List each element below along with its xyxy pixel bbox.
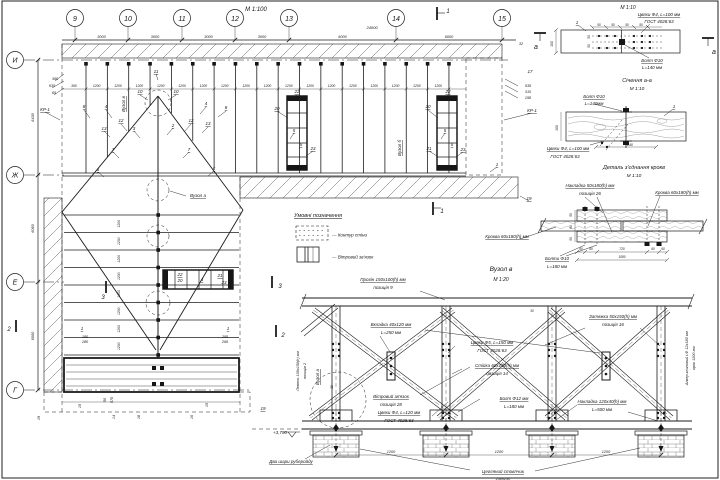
callout-text: 23	[220, 280, 227, 285]
callout-text: 50	[611, 23, 615, 27]
callout-text: 1200	[117, 272, 121, 280]
callout-text: Болт Ф10	[583, 94, 605, 99]
detail-joint-scale: М 1:10	[620, 5, 636, 11]
callout-text: 1	[446, 9, 449, 15]
plan-hip-lines	[62, 96, 243, 358]
callout-text: позиція 26	[579, 191, 601, 196]
callout-text: 3	[278, 284, 282, 290]
callout-text: 2	[280, 333, 285, 339]
callout-text: 570	[110, 396, 114, 403]
callout-text: 1200	[285, 84, 293, 88]
section-aa-scale: М 1:10	[630, 86, 645, 92]
callout-text: 8	[83, 104, 86, 109]
callout-text: 1200	[117, 255, 121, 263]
plan-scale-label: М 1:100	[245, 7, 267, 13]
callout-text: 11	[154, 69, 159, 74]
callout-text: 310	[525, 90, 532, 94]
callout-text: Вкладка 40х120 мм	[371, 322, 412, 327]
callout-text: 60	[569, 225, 573, 229]
callout-text: Лежень 100х150(h) мм	[296, 351, 300, 392]
callout-text: позиція 16	[602, 322, 624, 327]
callout-text: 14	[392, 16, 400, 23]
legend-symbols	[296, 226, 328, 262]
callout-text: 60	[579, 247, 583, 251]
legend-title: Умовні позначення	[293, 213, 342, 219]
callout-text: 1	[576, 20, 579, 25]
callout-text: позиція 28	[380, 402, 402, 407]
callout-text: 240	[626, 143, 633, 147]
callout-text: Цвяхи Ф4, L=100 мм	[638, 12, 681, 17]
callout-text: Болти Ф10	[545, 256, 569, 261]
callout-text: 1200	[349, 84, 357, 88]
callout-text: И	[12, 58, 18, 65]
callout-text: 6000	[338, 35, 347, 39]
callout-text: 180	[82, 340, 89, 344]
callout-text: 4	[205, 101, 208, 106]
callout-text: 22	[293, 89, 300, 94]
callout-text: 1200	[117, 220, 121, 228]
callout-text: Анкер клиновий LФ 12х180 мм	[685, 331, 689, 386]
rafter-detail-scale: М 1:10	[627, 173, 642, 179]
callout-text: Ж	[11, 173, 19, 180]
callout-text: 21	[425, 146, 432, 151]
rafter-detail-title: Деталь з'єднання крокв	[602, 165, 665, 171]
callout-text: 265	[221, 340, 229, 344]
callout-text: 1200	[117, 237, 121, 245]
callout-text: 60	[589, 247, 593, 251]
callout-text: Затяжка 50х150(h) мм	[589, 314, 637, 319]
callout-text: 16	[190, 414, 194, 419]
callout-text: 1200	[328, 84, 336, 88]
callout-text: 13	[101, 126, 107, 131]
callout-text: 19	[526, 196, 532, 201]
callout-text: 20	[273, 106, 280, 111]
callout-text: 30	[530, 309, 534, 313]
callout-text: 65	[52, 91, 57, 95]
detail-rafter-connection	[520, 196, 707, 262]
callout-text: 5	[444, 128, 447, 133]
callout-text: Вузол а	[190, 193, 206, 198]
callout-text: 1200	[136, 84, 144, 88]
callout-text: 6430	[31, 112, 35, 121]
callout-text: Два шари руберойду	[268, 458, 313, 464]
callout-text: 360	[52, 77, 59, 81]
callout-text: 11	[178, 16, 185, 23]
callout-text: 1200	[413, 84, 421, 88]
callout-text: 24000	[365, 25, 378, 30]
callout-text: Вузол а	[315, 369, 320, 385]
callout-text: 1200	[435, 84, 443, 88]
callout-text: 19	[37, 415, 41, 420]
callout-text: 1080	[618, 255, 625, 259]
callout-text: КР-1	[40, 107, 50, 112]
callout-text: 1200	[114, 84, 122, 88]
callout-text: 60	[651, 247, 655, 251]
callout-text: 50	[597, 23, 601, 27]
callout-text: позиція 14	[486, 371, 508, 376]
callout-text: 21	[216, 273, 223, 278]
callout-text: 50	[639, 23, 643, 27]
callout-text: 60	[661, 247, 665, 251]
callout-text: Накладка 50х180(h) мм	[566, 183, 615, 188]
callout-text: 1	[440, 209, 443, 215]
callout-text: 2	[171, 123, 175, 128]
detail-section-aa	[561, 104, 686, 150]
callout-text: 1200	[264, 84, 272, 88]
callout-text: 23	[459, 147, 466, 152]
callout-text: КР-1	[527, 108, 537, 113]
callout-text: 50	[103, 397, 107, 402]
callout-text: 6000	[31, 331, 35, 340]
callout-text: 1200	[117, 325, 121, 333]
callout-text: 8	[225, 105, 228, 110]
callout-text: 1200	[602, 450, 611, 454]
callout-text: 360	[71, 84, 77, 88]
callout-text: 6000	[445, 35, 454, 39]
callout-text: 1200	[387, 450, 396, 454]
callout-text: Накладка 120х40(h) мм	[578, 399, 627, 404]
callout-text: 3000	[97, 35, 106, 39]
callout-text: L=500 мм	[592, 407, 612, 412]
callout-text: 14	[112, 415, 116, 419]
callout-text: а	[534, 44, 538, 51]
callout-text: 1200	[392, 84, 400, 88]
callout-text: 1	[227, 326, 230, 331]
detail-joint-plan	[534, 24, 714, 58]
callout-text: 6060	[31, 223, 35, 232]
callout-text: ГОСТ 4028:63	[644, 19, 674, 24]
callout-text: 22	[176, 272, 183, 277]
callout-text: позиція 2	[303, 362, 307, 379]
callout-text: 20	[424, 104, 431, 109]
callout-text: Стійка 60х150(h) мм	[475, 362, 519, 368]
callout-text: Цвяхи Ф4, L=120 мм	[378, 410, 421, 415]
callout-text: L=140 мм	[642, 65, 662, 70]
callout-text: 10	[173, 89, 179, 94]
callout-text: 13	[285, 16, 293, 23]
callout-text: 19	[260, 406, 266, 411]
callout-text: 12	[118, 118, 124, 123]
callout-text: L=250 мм	[381, 330, 401, 335]
callout-text: 3000	[258, 35, 267, 39]
callout-text: 1200	[370, 84, 378, 88]
callout-text: 3	[133, 126, 136, 131]
callout-text: 6	[213, 166, 216, 171]
callout-text: 720	[619, 247, 625, 251]
callout-text: Цвяхи Ф4, L=100 мм	[547, 146, 590, 151]
callout-text: 1200	[495, 450, 504, 454]
plan-bottom-beam-box	[62, 358, 240, 402]
callout-text: 1	[496, 162, 499, 167]
callout-text: 1200	[93, 84, 101, 88]
callout-text: 1	[81, 326, 84, 331]
callout-text: 10	[137, 89, 143, 94]
callout-text: 1200	[178, 84, 186, 88]
callout-text: 1200	[200, 84, 208, 88]
callout-text: 535	[525, 84, 532, 88]
callout-text: 20	[176, 278, 183, 283]
callout-text: Вузол б	[397, 140, 402, 156]
callout-text: Вузол в	[121, 95, 126, 111]
callout-text: 50	[569, 237, 573, 241]
callout-text: 1	[673, 104, 676, 109]
callout-text: 32	[519, 42, 524, 46]
callout-text: 3000	[204, 35, 213, 39]
callout-text: 9	[73, 16, 77, 23]
callout-text: Цегляний стовпчик	[482, 468, 525, 474]
node-v-scale: М 1:20	[493, 277, 509, 283]
callout-text: Болт Ф10	[641, 58, 663, 63]
callout-text: 1200	[117, 290, 121, 298]
callout-text: 158	[525, 96, 532, 100]
callout-text: 50	[625, 23, 629, 27]
legend-item-brace: — Вітровий зв'язок	[331, 254, 374, 260]
callout-text: 5	[293, 128, 296, 133]
callout-text: Е	[13, 280, 18, 287]
callout-text: позиція 9	[373, 285, 393, 290]
callout-text: L=180 мм	[504, 404, 524, 409]
callout-text: 15	[498, 16, 506, 23]
callout-text: 100	[555, 125, 559, 131]
callout-text: 100	[550, 41, 554, 47]
callout-text: 17	[527, 69, 533, 74]
callout-text: Болт Ф12 мм	[500, 396, 529, 401]
callout-text: Цвяхи Ф5, L=150 мм	[471, 340, 514, 345]
callout-text: 180	[82, 335, 89, 339]
callout-text: 535	[49, 84, 56, 88]
callout-text: 6	[97, 167, 100, 172]
callout-text: Г	[13, 388, 18, 395]
callout-text: 12	[188, 118, 194, 123]
cad-canvas: М 1:100 Умовні позначення — Контур стіни…	[0, 0, 720, 480]
callout-text: L=140мм	[585, 101, 604, 106]
callout-text: 1200	[306, 84, 314, 88]
callout-text: +3,790	[273, 430, 287, 435]
callout-text: 30	[330, 385, 334, 389]
callout-text: 3	[101, 295, 105, 301]
callout-text: 22	[444, 89, 451, 94]
callout-text: 13	[205, 121, 211, 126]
callout-text: 1200	[221, 84, 229, 88]
callout-text: 18	[137, 414, 141, 419]
callout-text: 1200	[157, 84, 165, 88]
callout-text: L=180 мм	[547, 264, 567, 269]
callout-text: 50	[587, 35, 591, 39]
callout-text: 3000	[151, 35, 160, 39]
callout-text: 1200	[117, 342, 121, 350]
callout-text: ГОСТ 4028:63	[550, 154, 580, 159]
callout-text: 10	[124, 16, 132, 23]
callout-text: 2	[6, 327, 11, 333]
callout-text: ГОСТ 4028:63	[477, 348, 507, 353]
callout-text: 23	[309, 146, 316, 151]
legend-item-wall: — Контур стіни	[331, 233, 368, 238]
callout-text: 12	[231, 16, 239, 23]
callout-text: 50	[587, 44, 591, 48]
callout-text: Кроква 60х180(h) мм	[655, 190, 698, 195]
callout-text: Кроква 60х180(h) мм	[485, 234, 528, 239]
drawing-sheet: М 1:100 Умовні позначення — Контур стіни…	[0, 0, 720, 480]
node-v-title: Вузол в	[490, 266, 513, 273]
callout-text: крок 1200 мм	[692, 346, 696, 370]
callout-text: Прогін 150х100(h) мм	[360, 277, 405, 282]
callout-text: 1200	[117, 307, 121, 315]
callout-text: 255	[221, 335, 229, 339]
callout-text: ГОСТ 4028:63	[384, 418, 414, 423]
callout-text: 50	[569, 213, 573, 217]
section-aa-title: Січення а-а	[622, 78, 652, 84]
callout-text: Вітровий зв'язок	[373, 393, 410, 399]
callout-text: 7	[188, 147, 191, 152]
callout-text: 1200	[242, 84, 250, 88]
callout-text: 15	[78, 403, 82, 408]
callout-text: 15	[205, 402, 209, 407]
callout-text: а	[712, 49, 716, 56]
